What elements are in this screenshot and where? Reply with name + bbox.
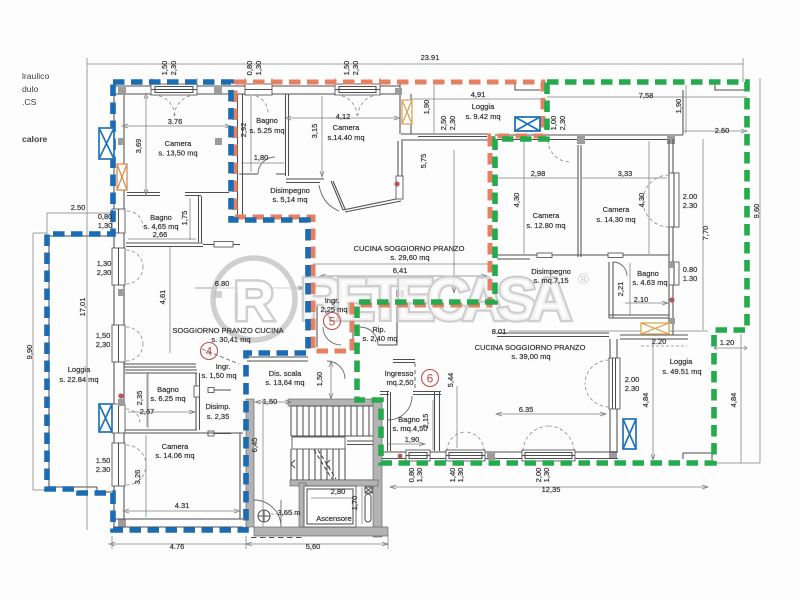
svg-text:s. 29,60 mq: s. 29,60 mq <box>390 253 429 262</box>
svg-text:1,30: 1,30 <box>456 468 465 483</box>
svg-text:5: 5 <box>329 315 336 329</box>
svg-text:s. 2,35: s. 2,35 <box>207 412 230 421</box>
svg-text:CUCINA SOGGIORNO PRANZO: CUCINA SOGGIORNO PRANZO <box>475 343 586 352</box>
svg-text:9,90: 9,90 <box>25 345 34 360</box>
svg-text:1.30: 1.30 <box>683 274 698 283</box>
svg-text:4.31: 4.31 <box>175 501 190 510</box>
svg-text:4,91: 4,91 <box>471 90 486 99</box>
svg-text:Disimp.: Disimp. <box>205 402 230 411</box>
svg-text:Camera: Camera <box>333 123 361 132</box>
svg-text:1,90: 1,90 <box>405 435 420 444</box>
svg-text:2,21: 2,21 <box>616 282 625 297</box>
svg-text:1,30: 1,30 <box>542 468 551 483</box>
svg-text:1,50: 1,50 <box>263 397 278 406</box>
svg-text:2,30: 2,30 <box>97 268 112 277</box>
svg-text:1,75: 1,75 <box>180 211 189 226</box>
svg-text:Camera: Camera <box>162 442 190 451</box>
svg-text:1,30: 1,30 <box>254 61 263 76</box>
svg-text:2,30: 2,30 <box>558 116 567 131</box>
svg-text:1.50: 1.50 <box>96 456 111 465</box>
svg-text:s.14.40 mq: s.14.40 mq <box>327 133 364 142</box>
svg-text:3,65 m: 3,65 m <box>278 508 301 517</box>
svg-text:4,30: 4,30 <box>637 193 646 208</box>
svg-text:Ascensore: Ascensore <box>316 514 351 523</box>
svg-text:17,01: 17,01 <box>78 298 87 317</box>
svg-text:CUCINA SOGGIORNO PRANZO: CUCINA SOGGIORNO PRANZO <box>354 244 465 253</box>
svg-text:6.80: 6.80 <box>215 279 230 288</box>
svg-text:2.00: 2.00 <box>683 192 698 201</box>
svg-text:2,25 mq: 2,25 mq <box>320 305 347 314</box>
svg-text:8.01: 8.01 <box>492 327 507 336</box>
svg-text:s. 30,41 mq: s. 30,41 mq <box>211 335 250 344</box>
svg-text:2,35: 2,35 <box>135 391 144 406</box>
svg-text:2.50: 2.50 <box>715 126 730 135</box>
svg-text:SOGGIORNO PRANZO CUCINA: SOGGIORNO PRANZO CUCINA <box>172 326 283 335</box>
svg-text:2.00: 2.00 <box>625 375 640 384</box>
svg-text:lraulico: lraulico <box>22 71 49 81</box>
svg-text:s. 9.42 mq: s. 9.42 mq <box>465 112 500 121</box>
svg-text:eurocasa: eurocasa <box>234 293 240 318</box>
svg-text:s. 22.84 mq: s. 22.84 mq <box>59 375 98 384</box>
svg-text:4,84: 4,84 <box>641 393 650 408</box>
svg-text:7,70: 7,70 <box>701 226 710 241</box>
svg-text:9,60: 9,60 <box>752 204 761 219</box>
svg-text:5,60: 5,60 <box>306 542 321 551</box>
svg-text:2,30: 2,30 <box>96 340 111 349</box>
svg-text:dulo: dulo <box>22 84 38 94</box>
svg-text:Ingr.: Ingr. <box>216 362 231 371</box>
svg-text:4,30: 4,30 <box>512 193 521 208</box>
svg-text:6,45: 6,45 <box>250 438 259 453</box>
svg-text:5,75: 5,75 <box>419 154 428 169</box>
svg-text:1,30: 1,30 <box>97 259 112 268</box>
svg-text:4: 4 <box>206 345 213 359</box>
svg-text:s. 14.30 mq: s. 14.30 mq <box>596 215 635 224</box>
svg-text:1,50: 1,50 <box>315 372 324 387</box>
svg-text:s. 5,14 mq: s. 5,14 mq <box>272 195 307 204</box>
svg-text:2.50: 2.50 <box>71 203 86 212</box>
svg-text:2,50: 2,50 <box>439 116 448 131</box>
svg-text:Disimpegno: Disimpegno <box>531 267 571 276</box>
svg-text:Ingresso: Ingresso <box>385 369 414 378</box>
svg-text:2,92: 2,92 <box>239 123 248 138</box>
svg-text:1,70: 1,70 <box>350 496 359 511</box>
svg-text:0,80: 0,80 <box>245 61 254 76</box>
svg-text:6.35: 6.35 <box>519 405 534 414</box>
svg-text:5,44: 5,44 <box>446 373 455 388</box>
svg-text:s. 39,00 mq: s. 39,00 mq <box>511 352 550 361</box>
svg-text:12,35: 12,35 <box>542 485 561 494</box>
svg-text:s. 12.80 mq: s. 12.80 mq <box>526 221 565 230</box>
svg-text:4.76: 4.76 <box>170 542 185 551</box>
svg-text:Camera: Camera <box>165 139 193 148</box>
svg-text:s. 1,50 mq: s. 1,50 mq <box>201 371 236 380</box>
svg-text:1,90: 1,90 <box>422 100 431 115</box>
svg-text:2,66: 2,66 <box>153 230 168 239</box>
svg-text:Disimpegno: Disimpegno <box>270 186 310 195</box>
svg-text:s. 14.06 mq: s. 14.06 mq <box>155 451 194 460</box>
svg-text:2,30: 2,30 <box>169 61 178 76</box>
svg-text:1.20: 1.20 <box>720 338 735 347</box>
svg-text:s. 13,64 mq: s. 13,64 mq <box>265 378 304 387</box>
svg-text:0,80: 0,80 <box>98 212 113 221</box>
svg-text:2,30: 2,30 <box>351 61 360 76</box>
svg-text:Dis. scala: Dis. scala <box>269 369 302 378</box>
svg-text:3,33: 3,33 <box>618 169 633 178</box>
svg-text:2,30: 2,30 <box>448 116 457 131</box>
svg-text:s. 13,50 mq: s. 13,50 mq <box>158 149 197 158</box>
svg-text:1,50: 1,50 <box>96 331 111 340</box>
svg-text:Bagno: Bagno <box>398 415 420 424</box>
svg-text:4,12: 4,12 <box>336 112 351 121</box>
svg-text:s. 49.51 mq: s. 49.51 mq <box>662 367 701 376</box>
svg-text:Camera: Camera <box>533 211 561 220</box>
svg-text:2.10: 2.10 <box>634 295 649 304</box>
svg-text:1,30: 1,30 <box>98 221 113 230</box>
svg-text:Loggia: Loggia <box>472 102 495 111</box>
svg-text:s. 4.63 mq: s. 4.63 mq <box>632 278 667 287</box>
svg-text:6: 6 <box>427 372 434 386</box>
svg-text:Bagno: Bagno <box>256 116 278 125</box>
svg-text:Camera: Camera <box>603 205 631 214</box>
svg-text:2.30: 2.30 <box>625 384 640 393</box>
svg-text:Loggia: Loggia <box>68 365 91 374</box>
svg-text:3,69: 3,69 <box>134 139 143 154</box>
svg-text:1,90: 1,90 <box>674 99 683 114</box>
svg-text:s. 2,40 mq: s. 2,40 mq <box>362 334 397 343</box>
svg-text:1,80: 1,80 <box>254 153 269 162</box>
svg-text:2,98: 2,98 <box>531 169 546 178</box>
svg-text:2,80: 2,80 <box>331 487 346 496</box>
svg-text:Bagno: Bagno <box>157 385 179 394</box>
svg-text:mq.2,50: mq.2,50 <box>386 378 413 387</box>
svg-text:Ingr.: Ingr. <box>325 296 340 305</box>
svg-text:®: ® <box>578 271 589 288</box>
svg-text:3.76: 3.76 <box>168 117 183 126</box>
svg-text:3,26: 3,26 <box>133 470 142 485</box>
svg-text:0.80: 0.80 <box>683 265 698 274</box>
svg-text:Loggia: Loggia <box>670 357 693 366</box>
svg-text:6,41: 6,41 <box>393 266 408 275</box>
svg-text:.CS: .CS <box>22 97 37 107</box>
svg-text:Rip.: Rip. <box>372 325 385 334</box>
svg-text:Bagno: Bagno <box>150 213 172 222</box>
svg-text:23.91: 23.91 <box>421 53 440 62</box>
svg-text:2,15: 2,15 <box>421 414 430 429</box>
svg-text:1,00: 1,00 <box>549 116 558 131</box>
svg-text:2.30: 2.30 <box>683 201 698 210</box>
svg-text:s. 6.25 mq: s. 6.25 mq <box>150 394 185 403</box>
svg-text:4,61: 4,61 <box>158 290 167 305</box>
svg-text:1,50: 1,50 <box>160 61 169 76</box>
svg-text:7,58: 7,58 <box>639 91 654 100</box>
svg-text:1,50: 1,50 <box>342 61 351 76</box>
svg-text:s. 5.25 mq: s. 5.25 mq <box>249 126 284 135</box>
svg-text:3,15: 3,15 <box>310 124 319 139</box>
svg-text:Bagno: Bagno <box>637 269 659 278</box>
svg-text:2.30: 2.30 <box>96 465 111 474</box>
svg-text:1,30: 1,30 <box>415 468 424 483</box>
svg-text:s. mq.7,15: s. mq.7,15 <box>533 276 568 285</box>
svg-text:calore: calore <box>22 134 48 144</box>
svg-text:2.20: 2.20 <box>652 337 667 346</box>
svg-text:4,84: 4,84 <box>729 393 738 408</box>
